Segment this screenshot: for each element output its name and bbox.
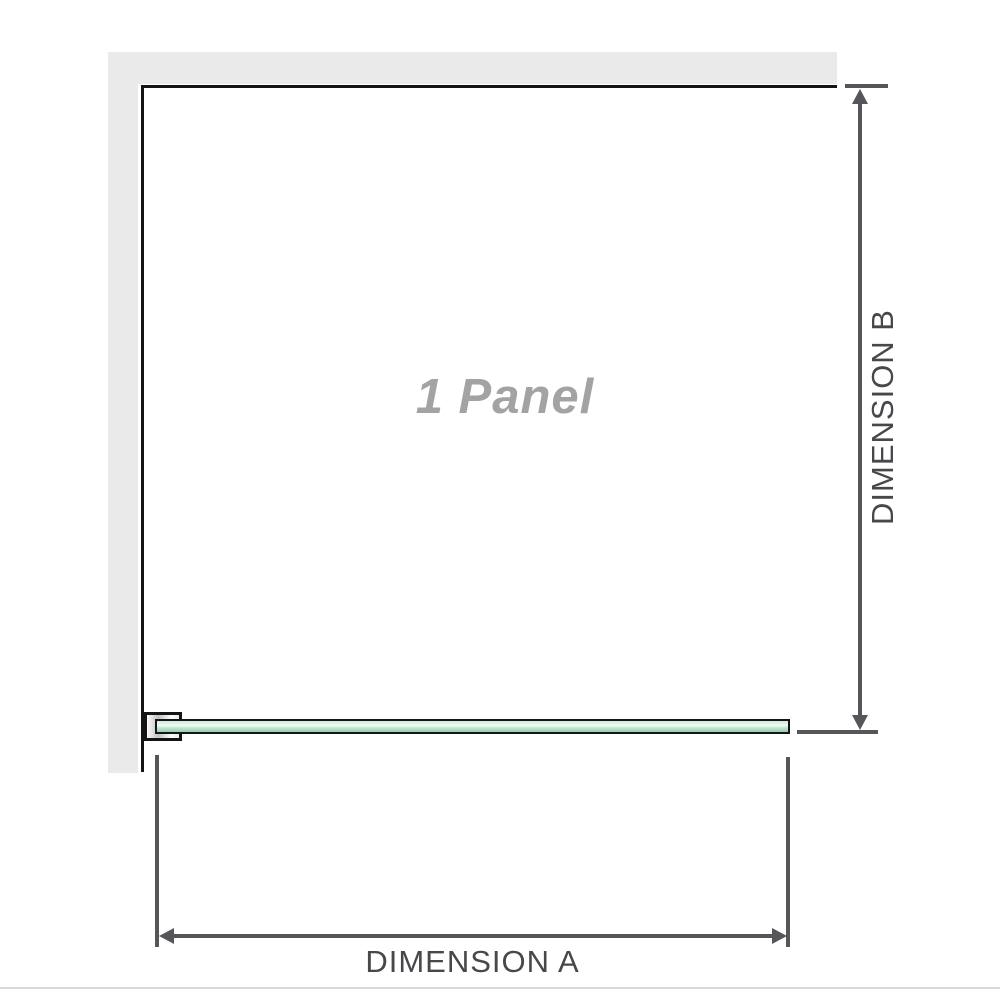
dimension-a-line [170,934,776,938]
wall-top [108,52,837,84]
glass-panel [155,719,790,734]
arrow-up-icon [852,89,868,104]
panel-outline-top-edge [141,85,837,88]
arrow-down-icon [852,715,868,730]
dimension-a-label: DIMENSION A [157,944,788,980]
panel-count-watermark: 1 Panel [340,362,670,432]
dimension-b-bottom-tick [797,730,878,734]
panel-outline-left-edge [141,85,144,772]
shower-panel-dimension-diagram: 1 Panel DIMENSION B DIMENSION A [0,0,1000,1000]
arrow-right-icon [772,928,787,944]
dimension-b-label: DIMENSION B [865,309,901,525]
dimension-b-top-tick [845,84,888,88]
wall-left [108,52,138,773]
dimension-a-left-extension-line [155,755,159,947]
dimension-b-line [858,101,862,717]
dimension-a-right-extension-line [786,757,790,947]
arrow-left-icon [159,928,174,944]
page-divider [0,987,1000,989]
